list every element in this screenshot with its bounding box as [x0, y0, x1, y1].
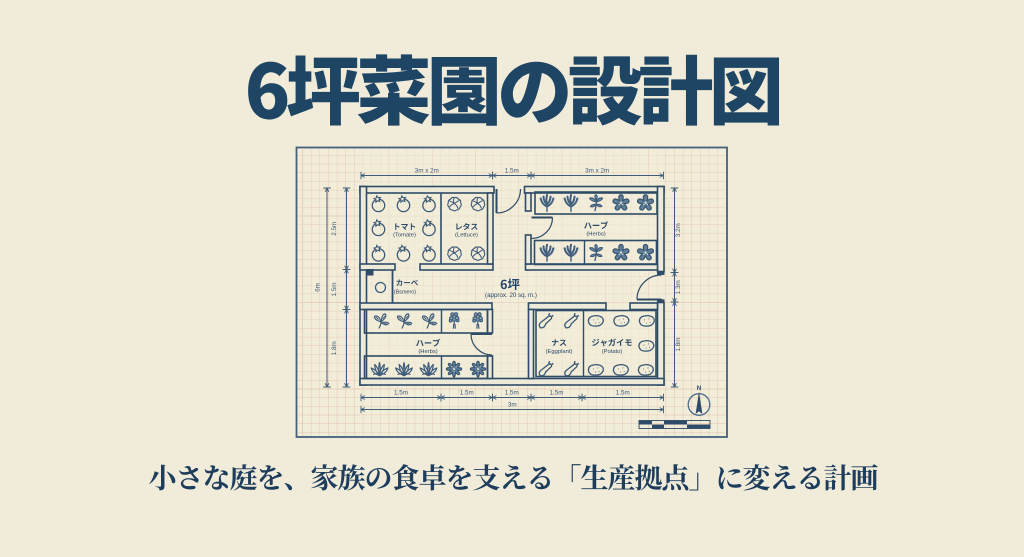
- svg-text:3m x 2m: 3m x 2m: [415, 168, 439, 175]
- svg-text:1.8m: 1.8m: [675, 338, 682, 352]
- svg-text:(Bsmero): (Bsmero): [394, 290, 416, 296]
- svg-text:(Herbs): (Herbs): [418, 349, 437, 355]
- svg-text:(Potato): (Potato): [602, 349, 623, 355]
- svg-text:1.5m: 1.5m: [331, 283, 338, 297]
- svg-text:1.5m: 1.5m: [616, 390, 630, 397]
- svg-text:2.5m: 2.5m: [331, 222, 338, 236]
- svg-text:1.5m: 1.5m: [505, 390, 519, 397]
- svg-text:1.3m: 1.3m: [675, 280, 682, 294]
- svg-text:1.5m: 1.5m: [460, 390, 474, 397]
- svg-text:(Herbs): (Herbs): [586, 232, 605, 238]
- svg-text:(Tomate): (Tomate): [393, 233, 416, 239]
- svg-text:3m x 2m: 3m x 2m: [585, 168, 609, 175]
- svg-text:(Lettuce): (Lettuce): [455, 233, 478, 239]
- svg-text:(Eggplant): (Eggplant): [546, 349, 573, 355]
- svg-text:N: N: [697, 385, 702, 392]
- svg-text:3.2m: 3.2m: [675, 223, 682, 237]
- svg-text:3m: 3m: [508, 402, 517, 409]
- svg-text:1.5m: 1.5m: [394, 390, 408, 397]
- svg-text:1.5m: 1.5m: [505, 168, 519, 175]
- svg-text:1.5m: 1.5m: [550, 390, 564, 397]
- svg-text:(approx. 20 sq. m.): (approx. 20 sq. m.): [485, 292, 537, 299]
- svg-text:1.8m: 1.8m: [331, 341, 338, 355]
- svg-text:6m: 6m: [315, 283, 322, 292]
